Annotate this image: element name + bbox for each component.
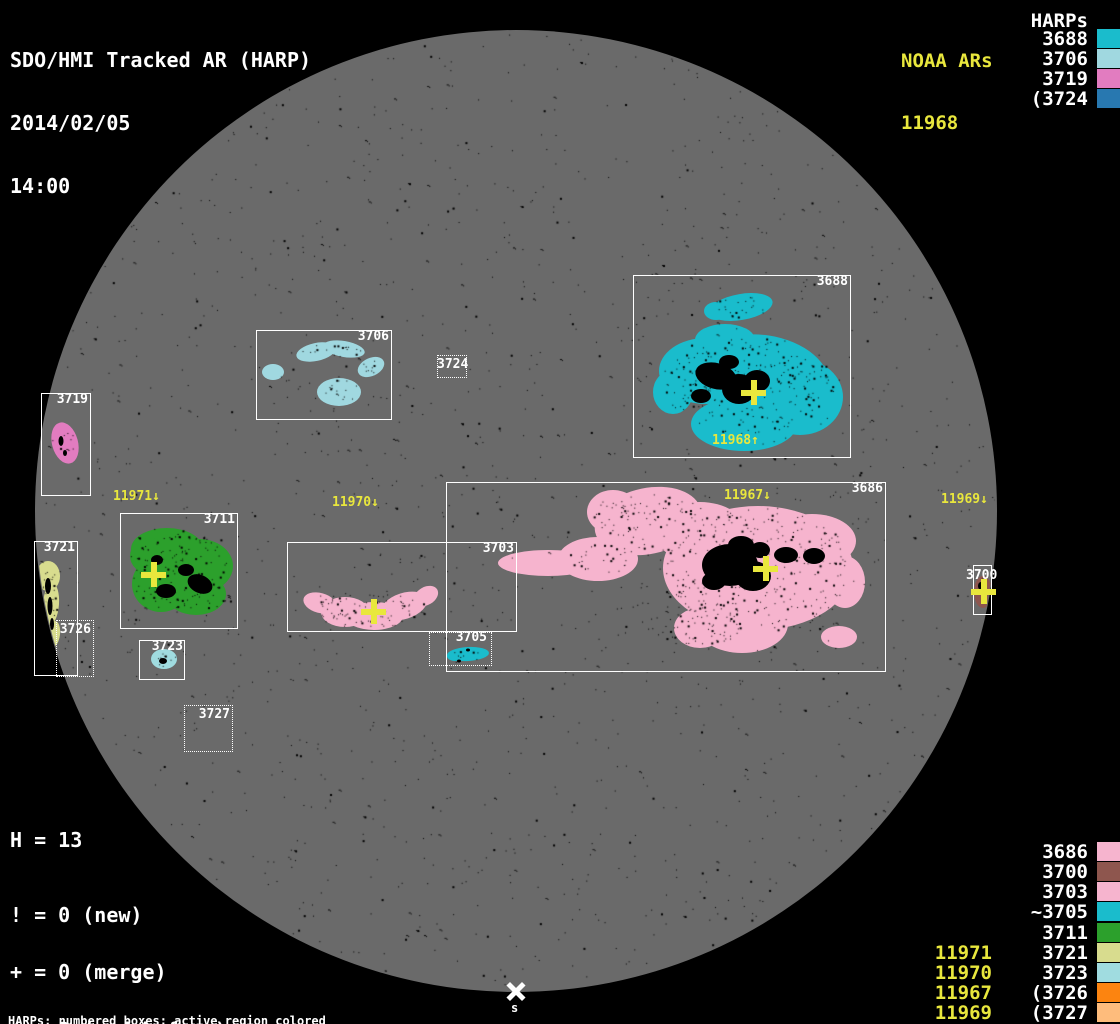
harp-plot: 3688 3706 3719 3721 3711 3723 3703 3686 … [0, 0, 1120, 1024]
legend-row: 3700 [900, 862, 1120, 882]
legend-row: 3686 [900, 842, 1120, 862]
noaa-number: 11967 [900, 983, 992, 1003]
color-swatch [1097, 963, 1120, 982]
noaa-ar-label-11971: 11971↓ [113, 489, 160, 504]
harp-box-label-3726: 3726 [60, 623, 91, 637]
color-swatch [1097, 943, 1120, 962]
noaa-ar-label-11968: 11968↑ [712, 433, 759, 448]
harp-box-3724: 3724 [437, 355, 467, 378]
plot-title: SDO/HMI Tracked AR (HARP) [10, 50, 311, 71]
legend-row: 3688 [993, 29, 1120, 49]
harp-box-label-3686: 3686 [852, 482, 883, 496]
legend-row: 11970 3723 [900, 963, 1120, 983]
footnotes: HARPs: numbered boxes; active region col… [8, 989, 427, 1024]
color-swatch [1097, 69, 1120, 88]
harp-box-3723: 3723 [139, 640, 185, 680]
color-swatch [1097, 882, 1120, 901]
legend-row: 3703 [900, 882, 1120, 902]
harp-number: 3706 [993, 49, 1088, 69]
noaa-cross-11967 [753, 556, 778, 581]
color-swatch [1097, 49, 1120, 68]
noaa-number: 11970 [900, 963, 992, 983]
harp-box-3726: 3726 [56, 620, 94, 677]
harp-box-label-3724: 3724 [437, 358, 468, 372]
legend-row: (3724 [993, 89, 1120, 109]
noaa-number: 11971 [900, 943, 992, 963]
noaa-ars-header: NOAA ARs [901, 51, 993, 72]
noaa-number: 11969 [900, 1003, 992, 1023]
harp-box-3706: 3706 [256, 330, 392, 420]
harp-box-3711: 3711 [120, 513, 238, 629]
harp-number: (3724 [993, 89, 1088, 109]
harp-number: 3711 [996, 923, 1088, 943]
noaa-cross-11971 [141, 562, 166, 587]
harp-number: 3721 [996, 943, 1088, 963]
stat-line: ! = 0 (new) [10, 906, 239, 925]
noaa-ar-number: 11968 [901, 113, 993, 134]
harp-box-label-3711: 3711 [204, 513, 235, 527]
noaa-ar-label-11970: 11970↓ [332, 495, 379, 510]
harp-number: 3688 [993, 29, 1088, 49]
harp-box-label-3723: 3723 [152, 640, 183, 654]
legend-row: 3719 [993, 69, 1120, 89]
stat-line: + = 0 (merge) [10, 963, 239, 982]
legend-row: ~3705 [900, 902, 1120, 922]
harp-number: (3727 [996, 1003, 1088, 1023]
harp-count: H = 13 [10, 828, 82, 852]
harp-box-label-3705: 3705 [456, 631, 487, 645]
south-pole-marker [505, 980, 527, 1002]
color-swatch [1097, 842, 1120, 861]
harp-box-label-3719: 3719 [57, 393, 88, 407]
south-pole-label: s [511, 1001, 518, 1015]
harp-box-label-3721: 3721 [44, 541, 75, 555]
color-swatch [1097, 983, 1120, 1002]
harp-number: ~3705 [996, 902, 1088, 922]
harp-box-3727: 3727 [184, 705, 233, 752]
harp-number: 3700 [996, 862, 1088, 882]
plot-time: 14:00 [10, 176, 311, 197]
harp-box-label-3688: 3688 [817, 275, 848, 289]
harp-box-3686: 3686 [446, 482, 886, 672]
legend-row: 3706 [993, 49, 1120, 69]
color-swatch [1097, 29, 1120, 48]
legend-row: 3711 [900, 923, 1120, 943]
footnote-harps: HARPs: numbered boxes; active region col… [8, 1015, 427, 1024]
plot-date: 2014/02/05 [10, 113, 311, 134]
harp-box-3688: 3688 [633, 275, 851, 458]
header: SDO/HMI Tracked AR (HARP) 2014/02/05 14:… [10, 8, 311, 239]
noaa-cross-11968 [741, 380, 766, 405]
harp-box-3719: 3719 [41, 393, 91, 496]
color-swatch [1097, 1003, 1120, 1022]
noaa-ar-label-11967: 11967↓ [724, 488, 771, 503]
legend-row: 11971 3721 [900, 943, 1120, 963]
harp-box-3705: 3705 [429, 632, 492, 666]
harp-number: 3703 [996, 882, 1088, 902]
harp-number: 3719 [993, 69, 1088, 89]
harp-number: 3686 [996, 842, 1088, 862]
color-swatch [1097, 89, 1120, 108]
harp-box-label-3727: 3727 [199, 708, 230, 722]
legend-row: 11967 (3726 [900, 983, 1120, 1003]
harp-box-label-3706: 3706 [358, 330, 389, 344]
color-swatch [1097, 923, 1120, 942]
harp-number: (3726 [996, 983, 1088, 1003]
color-swatch [1097, 862, 1120, 881]
noaa-cross-11970 [361, 599, 386, 624]
harp-number: 3723 [996, 963, 1088, 983]
noaa-ar-label-11969: 11969↓ [941, 492, 988, 507]
color-swatch [1097, 902, 1120, 921]
noaa-cross-11969 [971, 579, 996, 604]
legend-row: 11969 (3727 [900, 1003, 1120, 1023]
noaa-ars-column: NOAA ARs 11968 [901, 10, 993, 174]
